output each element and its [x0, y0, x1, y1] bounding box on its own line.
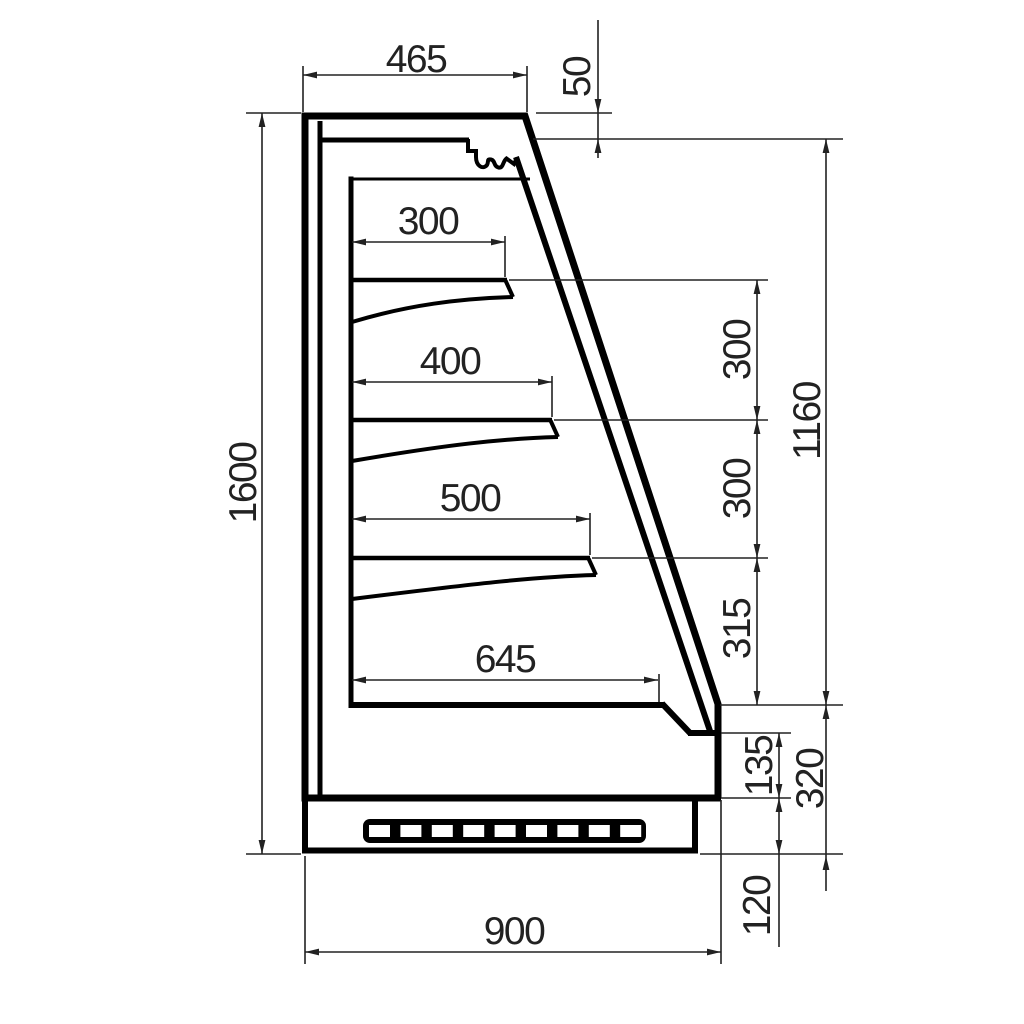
dim-top-depth-label: 465: [386, 38, 447, 81]
technical-drawing: 465 50 1600 300 400 500 645 300: [0, 0, 1024, 1024]
dim-shelf1-depth-label: 300: [398, 200, 459, 243]
dim-plinth-height-label: 120: [736, 875, 779, 936]
shelf-3-bracket: [352, 575, 596, 599]
dim-shelf2-depth-label: 400: [420, 340, 481, 383]
vent-grille: [363, 819, 646, 843]
dim-return-height: 135: [721, 733, 791, 854]
grille-slot: [495, 825, 516, 837]
dim-shelf3-depth-label: 500: [440, 477, 501, 520]
dim-shelf2-depth: 400: [352, 340, 552, 417]
shelf-2: [351, 420, 558, 461]
dim-top-depth: 465: [303, 38, 527, 112]
dim-opening-height-label: 1160: [786, 381, 829, 460]
dim-deck-depth: 645: [352, 638, 659, 702]
grille-slot: [589, 825, 610, 837]
grille-slot: [463, 825, 484, 837]
inner-slope-line: [516, 157, 711, 734]
dim-gap-shelf2-label: 300: [716, 458, 759, 519]
dim-shelf-gaps: 300 300 315: [509, 280, 768, 705]
shelf-2-lip: [551, 421, 559, 438]
grille-slot: [432, 825, 453, 837]
dim-lower-height-label: 320: [789, 748, 832, 809]
grille-slot: [620, 825, 641, 837]
dim-deck-depth-label: 645: [475, 638, 536, 681]
grille-slot: [557, 825, 578, 837]
cabinet-structure: [302, 116, 722, 851]
dim-total-height: 1600: [222, 113, 301, 854]
grille-slots: [369, 825, 641, 837]
dim-plinth-height: 120: [736, 798, 783, 947]
shelf-1-lip: [506, 281, 514, 298]
grille-slot: [526, 825, 547, 837]
shelf-1: [351, 280, 513, 322]
dim-return-height-label: 135: [738, 735, 781, 796]
dim-canopy-gap: 50: [533, 20, 843, 158]
shelf-3-lip: [589, 559, 597, 576]
grille-slot: [400, 825, 421, 837]
notch-diagonal: [662, 704, 690, 734]
shelf-1-bracket: [352, 297, 513, 322]
dim-shelf3-depth: 500: [352, 477, 590, 555]
dim-gap-shelf3-label: 315: [716, 598, 759, 659]
shelf-2-bracket: [352, 437, 558, 461]
air-outlet-detail: [468, 139, 517, 168]
shelf-3: [351, 558, 596, 599]
dim-gap-shelf1-label: 300: [716, 319, 759, 380]
grille-slot: [369, 825, 390, 837]
dim-total-height-label: 1600: [222, 442, 265, 524]
dim-total-depth-label: 900: [484, 910, 545, 953]
drawing-sheet: 465 50 1600 300 400 500 645 300: [0, 0, 1024, 1024]
dim-shelf1-depth: 300: [352, 200, 505, 277]
dim-canopy-gap-label: 50: [556, 56, 599, 97]
